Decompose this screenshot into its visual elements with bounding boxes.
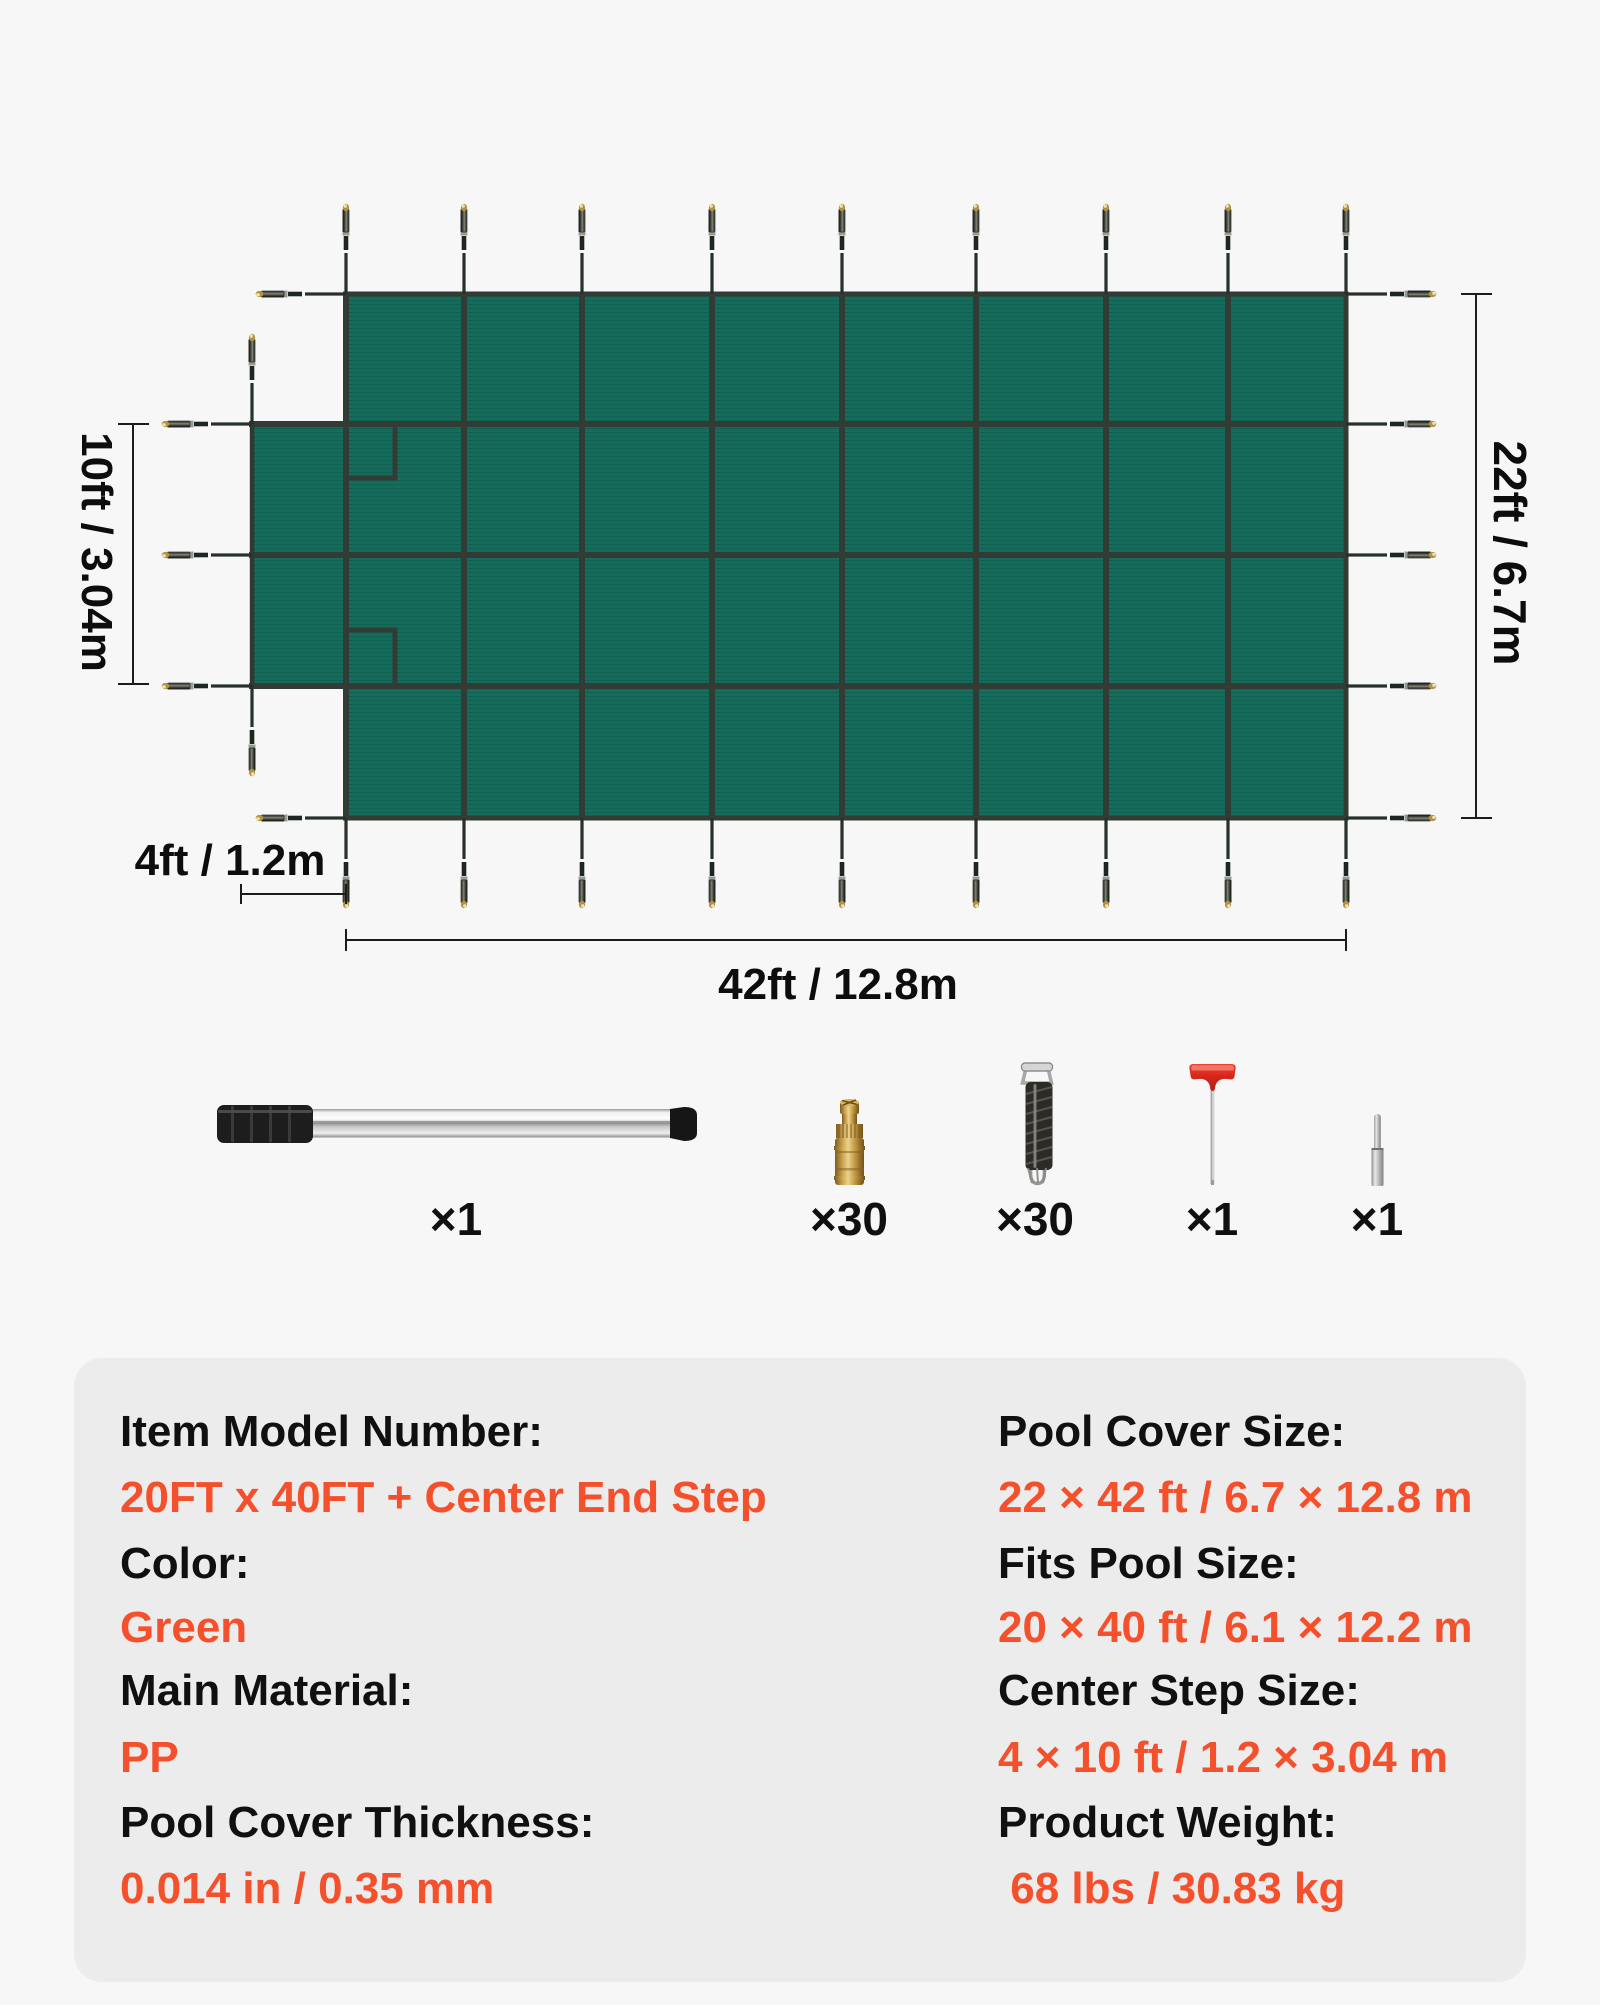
svg-text:Main Material:: Main Material:	[120, 1666, 413, 1715]
svg-text:0.014 in / 0.35 mm: 0.014 in / 0.35 mm	[120, 1864, 494, 1913]
svg-text:42ft / 12.8m: 42ft / 12.8m	[718, 960, 958, 1009]
svg-text:×30: ×30	[810, 1193, 888, 1245]
svg-text:Fits Pool Size:: Fits Pool Size:	[998, 1539, 1299, 1588]
svg-text:68 lbs / 30.83 kg: 68 lbs / 30.83 kg	[998, 1864, 1345, 1913]
svg-text:Item Model Number:: Item Model Number:	[120, 1407, 543, 1456]
svg-text:22ft / 6.7m: 22ft / 6.7m	[1484, 441, 1536, 666]
svg-text:4 × 10 ft / 1.2 × 3.04 m: 4 × 10 ft / 1.2 × 3.04 m	[998, 1733, 1448, 1782]
svg-text:Pool Cover Size:: Pool Cover Size:	[998, 1407, 1345, 1456]
svg-text:×30: ×30	[996, 1193, 1074, 1245]
svg-text:×1: ×1	[1351, 1193, 1403, 1245]
svg-text:20FT x 40FT + Center End Step: 20FT x 40FT + Center End Step	[120, 1473, 767, 1522]
svg-text:Product Weight:: Product Weight:	[998, 1798, 1337, 1847]
svg-text:10ft / 3.04m: 10ft / 3.04m	[72, 432, 121, 672]
svg-text:×1: ×1	[1186, 1193, 1238, 1245]
svg-text:Center Step Size:: Center Step Size:	[998, 1666, 1360, 1715]
svg-text:4ft / 1.2m: 4ft / 1.2m	[135, 836, 326, 885]
svg-text:PP: PP	[120, 1733, 179, 1782]
svg-text:20 × 40 ft / 6.1 × 12.2 m: 20 × 40 ft / 6.1 × 12.2 m	[998, 1603, 1473, 1652]
svg-text:Color:: Color:	[120, 1539, 250, 1588]
svg-text:Green: Green	[120, 1603, 247, 1652]
svg-text:×1: ×1	[430, 1193, 482, 1245]
svg-text:22 × 42 ft / 6.7 × 12.8 m: 22 × 42 ft / 6.7 × 12.8 m	[998, 1473, 1473, 1522]
svg-text:Pool Cover Thickness:: Pool Cover Thickness:	[120, 1798, 594, 1847]
